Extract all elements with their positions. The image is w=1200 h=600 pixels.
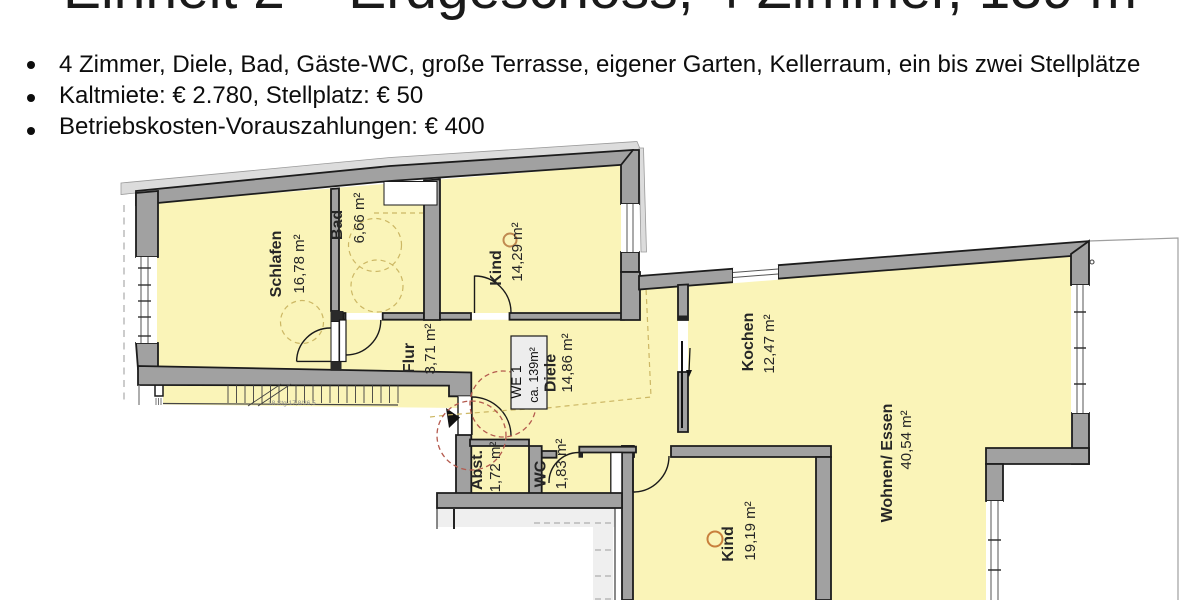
svg-text:Kochen: Kochen (740, 313, 757, 372)
svg-text:19,19 m²: 19,19 m² (742, 501, 759, 560)
svg-text:40,54 m²: 40,54 m² (898, 410, 915, 469)
svg-text:WE 1: WE 1 (509, 365, 524, 398)
svg-text:6,66 m²: 6,66 m² (351, 193, 368, 244)
svg-text:Kind: Kind (720, 526, 737, 562)
svg-text:Bad: Bad (329, 210, 346, 240)
svg-text:Schlafen: Schlafen (268, 231, 285, 298)
svg-text:Abst.: Abst. (469, 450, 486, 490)
svg-text:Flur: Flur (401, 343, 418, 373)
svg-text:Wohnen/ Essen: Wohnen/ Essen (879, 404, 896, 523)
svg-text:14,86 m²: 14,86 m² (559, 333, 576, 392)
svg-text:WC: WC (533, 460, 550, 487)
svg-text:3,71 m²: 3,71 m² (422, 324, 439, 375)
svg-text:14,29 m²: 14,29 m² (509, 222, 526, 281)
svg-text:1,72 m²: 1,72 m² (487, 442, 504, 493)
svg-text:16,78 m²: 16,78 m² (291, 234, 308, 293)
svg-text:ca. 139m²: ca. 139m² (527, 347, 541, 403)
svg-text:18 Stg 17,8/26,5: 18 Stg 17,8/26,5 (268, 400, 316, 407)
svg-text:12,47 m²: 12,47 m² (761, 314, 778, 373)
svg-text:Diele: Diele (543, 354, 560, 392)
svg-text:1,83 m²: 1,83 m² (553, 439, 570, 490)
svg-text:Kind: Kind (488, 250, 505, 286)
